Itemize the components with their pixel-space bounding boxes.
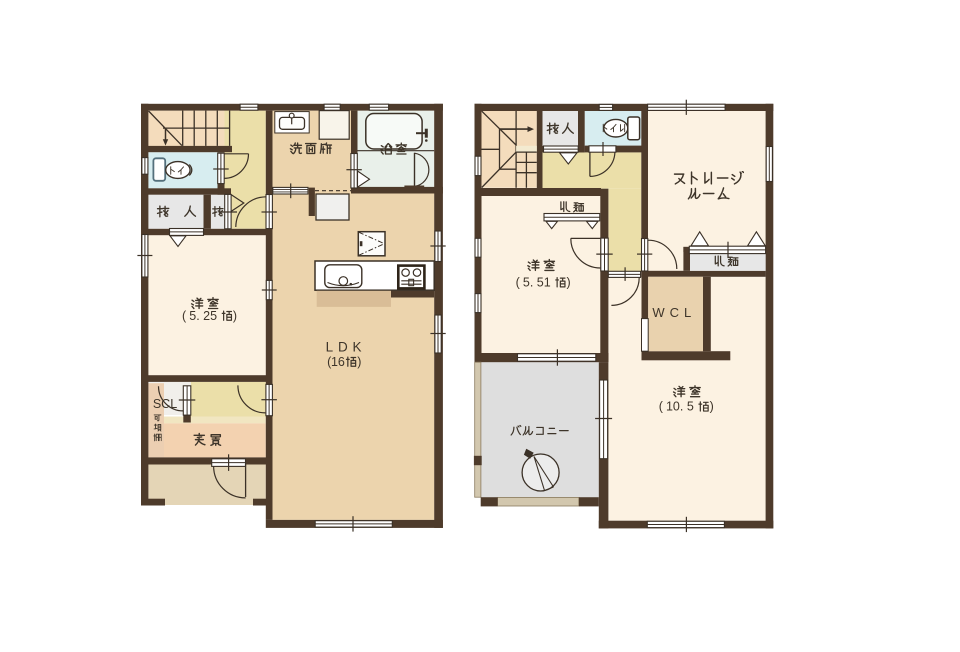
svg-text:LDK: LDK: [326, 340, 367, 355]
svg-text:): ): [567, 276, 571, 290]
svg-text:16: 16: [331, 355, 345, 369]
svg-text:10. 5: 10. 5: [666, 400, 694, 414]
svg-text:): ): [233, 309, 237, 323]
svg-text:5. 51: 5. 51: [523, 276, 551, 290]
svg-text:5. 25: 5. 25: [189, 309, 217, 323]
svg-text:SCL: SCL: [153, 397, 177, 411]
svg-text:): ): [710, 400, 714, 414]
svg-text:): ): [357, 355, 361, 369]
svg-text:WCL: WCL: [652, 305, 696, 320]
